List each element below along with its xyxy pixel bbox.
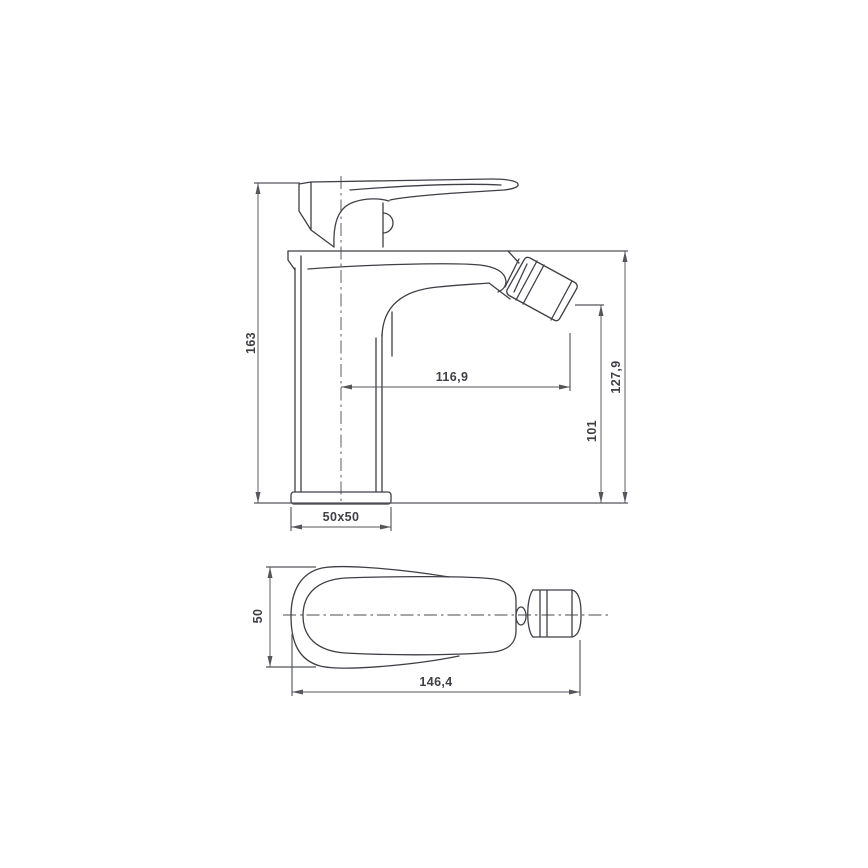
drawing-canvas: 163 127,9 101 116,9 50x50: [0, 0, 868, 868]
page-background: [0, 0, 868, 868]
dim-label-total-height: 163: [244, 332, 258, 354]
technical-drawing: 163 127,9 101 116,9 50x50: [0, 0, 868, 868]
dim-label-base-footprint: 50x50: [323, 510, 360, 524]
dim-label-body-width: 50: [251, 609, 265, 624]
dim-label-spout-top-height: 127,9: [609, 360, 623, 393]
dim-label-outlet-height: 101: [585, 420, 599, 442]
dim-label-spout-reach: 116,9: [436, 370, 469, 384]
dim-label-total-length: 146,4: [419, 675, 452, 689]
